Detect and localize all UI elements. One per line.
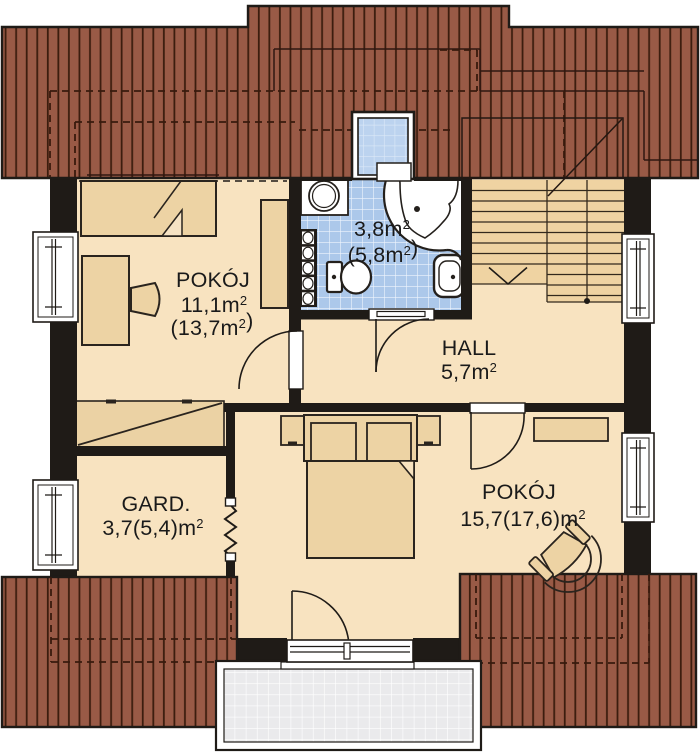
svg-text:3,7(5,4)m2: 3,7(5,4)m2 (102, 516, 203, 540)
svg-text:POKÓJ: POKÓJ (176, 267, 250, 292)
svg-text:11,1m2: 11,1m2 (181, 293, 248, 317)
svg-text:5,7m2: 5,7m2 (441, 360, 497, 384)
svg-text:GARD.: GARD. (121, 492, 190, 516)
svg-text:POKÓJ: POKÓJ (482, 479, 556, 504)
svg-text:HALL: HALL (442, 336, 497, 360)
svg-text:3,8m2: 3,8m2 (354, 217, 410, 241)
svg-text:15,7(17,6)m2: 15,7(17,6)m2 (460, 507, 586, 531)
